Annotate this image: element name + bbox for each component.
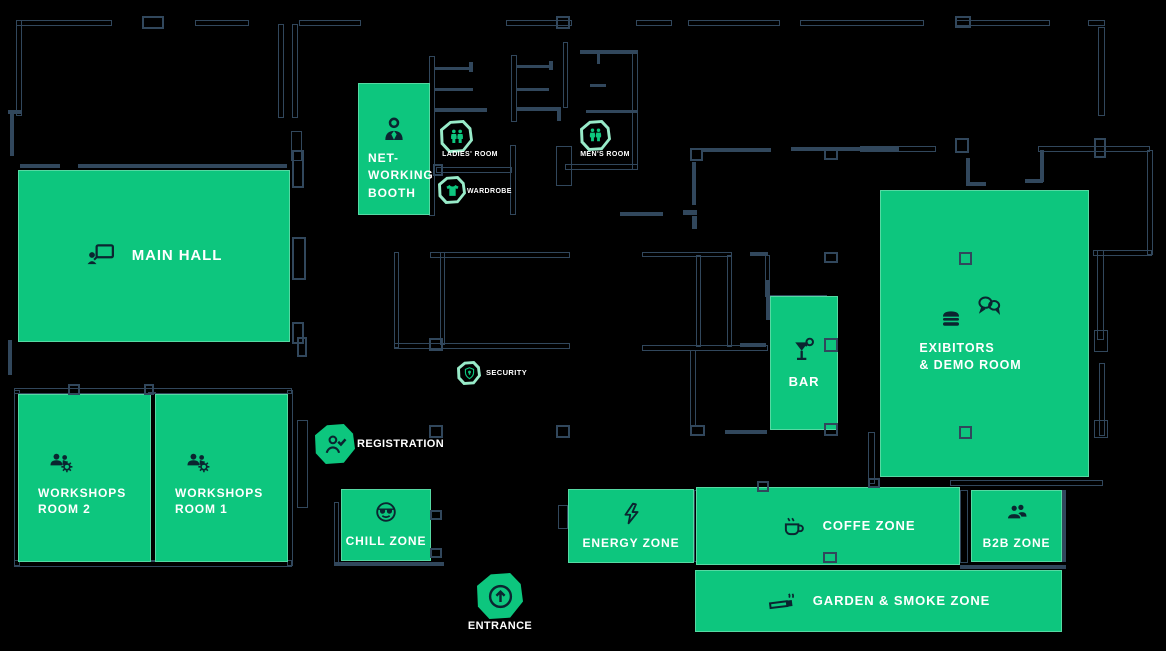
marker-label: WARDROBE <box>467 188 527 196</box>
marker-entrance <box>477 573 523 619</box>
marker-security <box>457 361 481 385</box>
marker-label: REGISTRATION <box>357 438 467 451</box>
marker-label: SECURITY <box>486 369 538 378</box>
tshirt-icon <box>444 182 461 199</box>
marker-label: MEN'S ROOM <box>574 151 636 159</box>
marker-label: LADIES' ROOM <box>437 151 503 159</box>
wc-people-icon <box>586 126 605 145</box>
venue-floorplan: MAIN HALLNET- WORKING BOOTHWORKSHOPS ROO… <box>0 0 1166 651</box>
arrow-up-icon <box>486 582 515 611</box>
shield-icon <box>462 366 477 381</box>
marker-wardrobe <box>438 176 466 204</box>
marker-ladies-room <box>440 120 473 153</box>
wc-people-icon <box>447 127 467 147</box>
marker-mens-room <box>580 120 611 151</box>
marker-registration <box>315 424 355 464</box>
marker-label: ENTRANCE <box>462 620 538 633</box>
markers-layer: LADIES' ROOMWARDROBEMEN'S ROOMSECURITYRE… <box>0 0 1166 651</box>
person-check-icon <box>323 432 348 457</box>
